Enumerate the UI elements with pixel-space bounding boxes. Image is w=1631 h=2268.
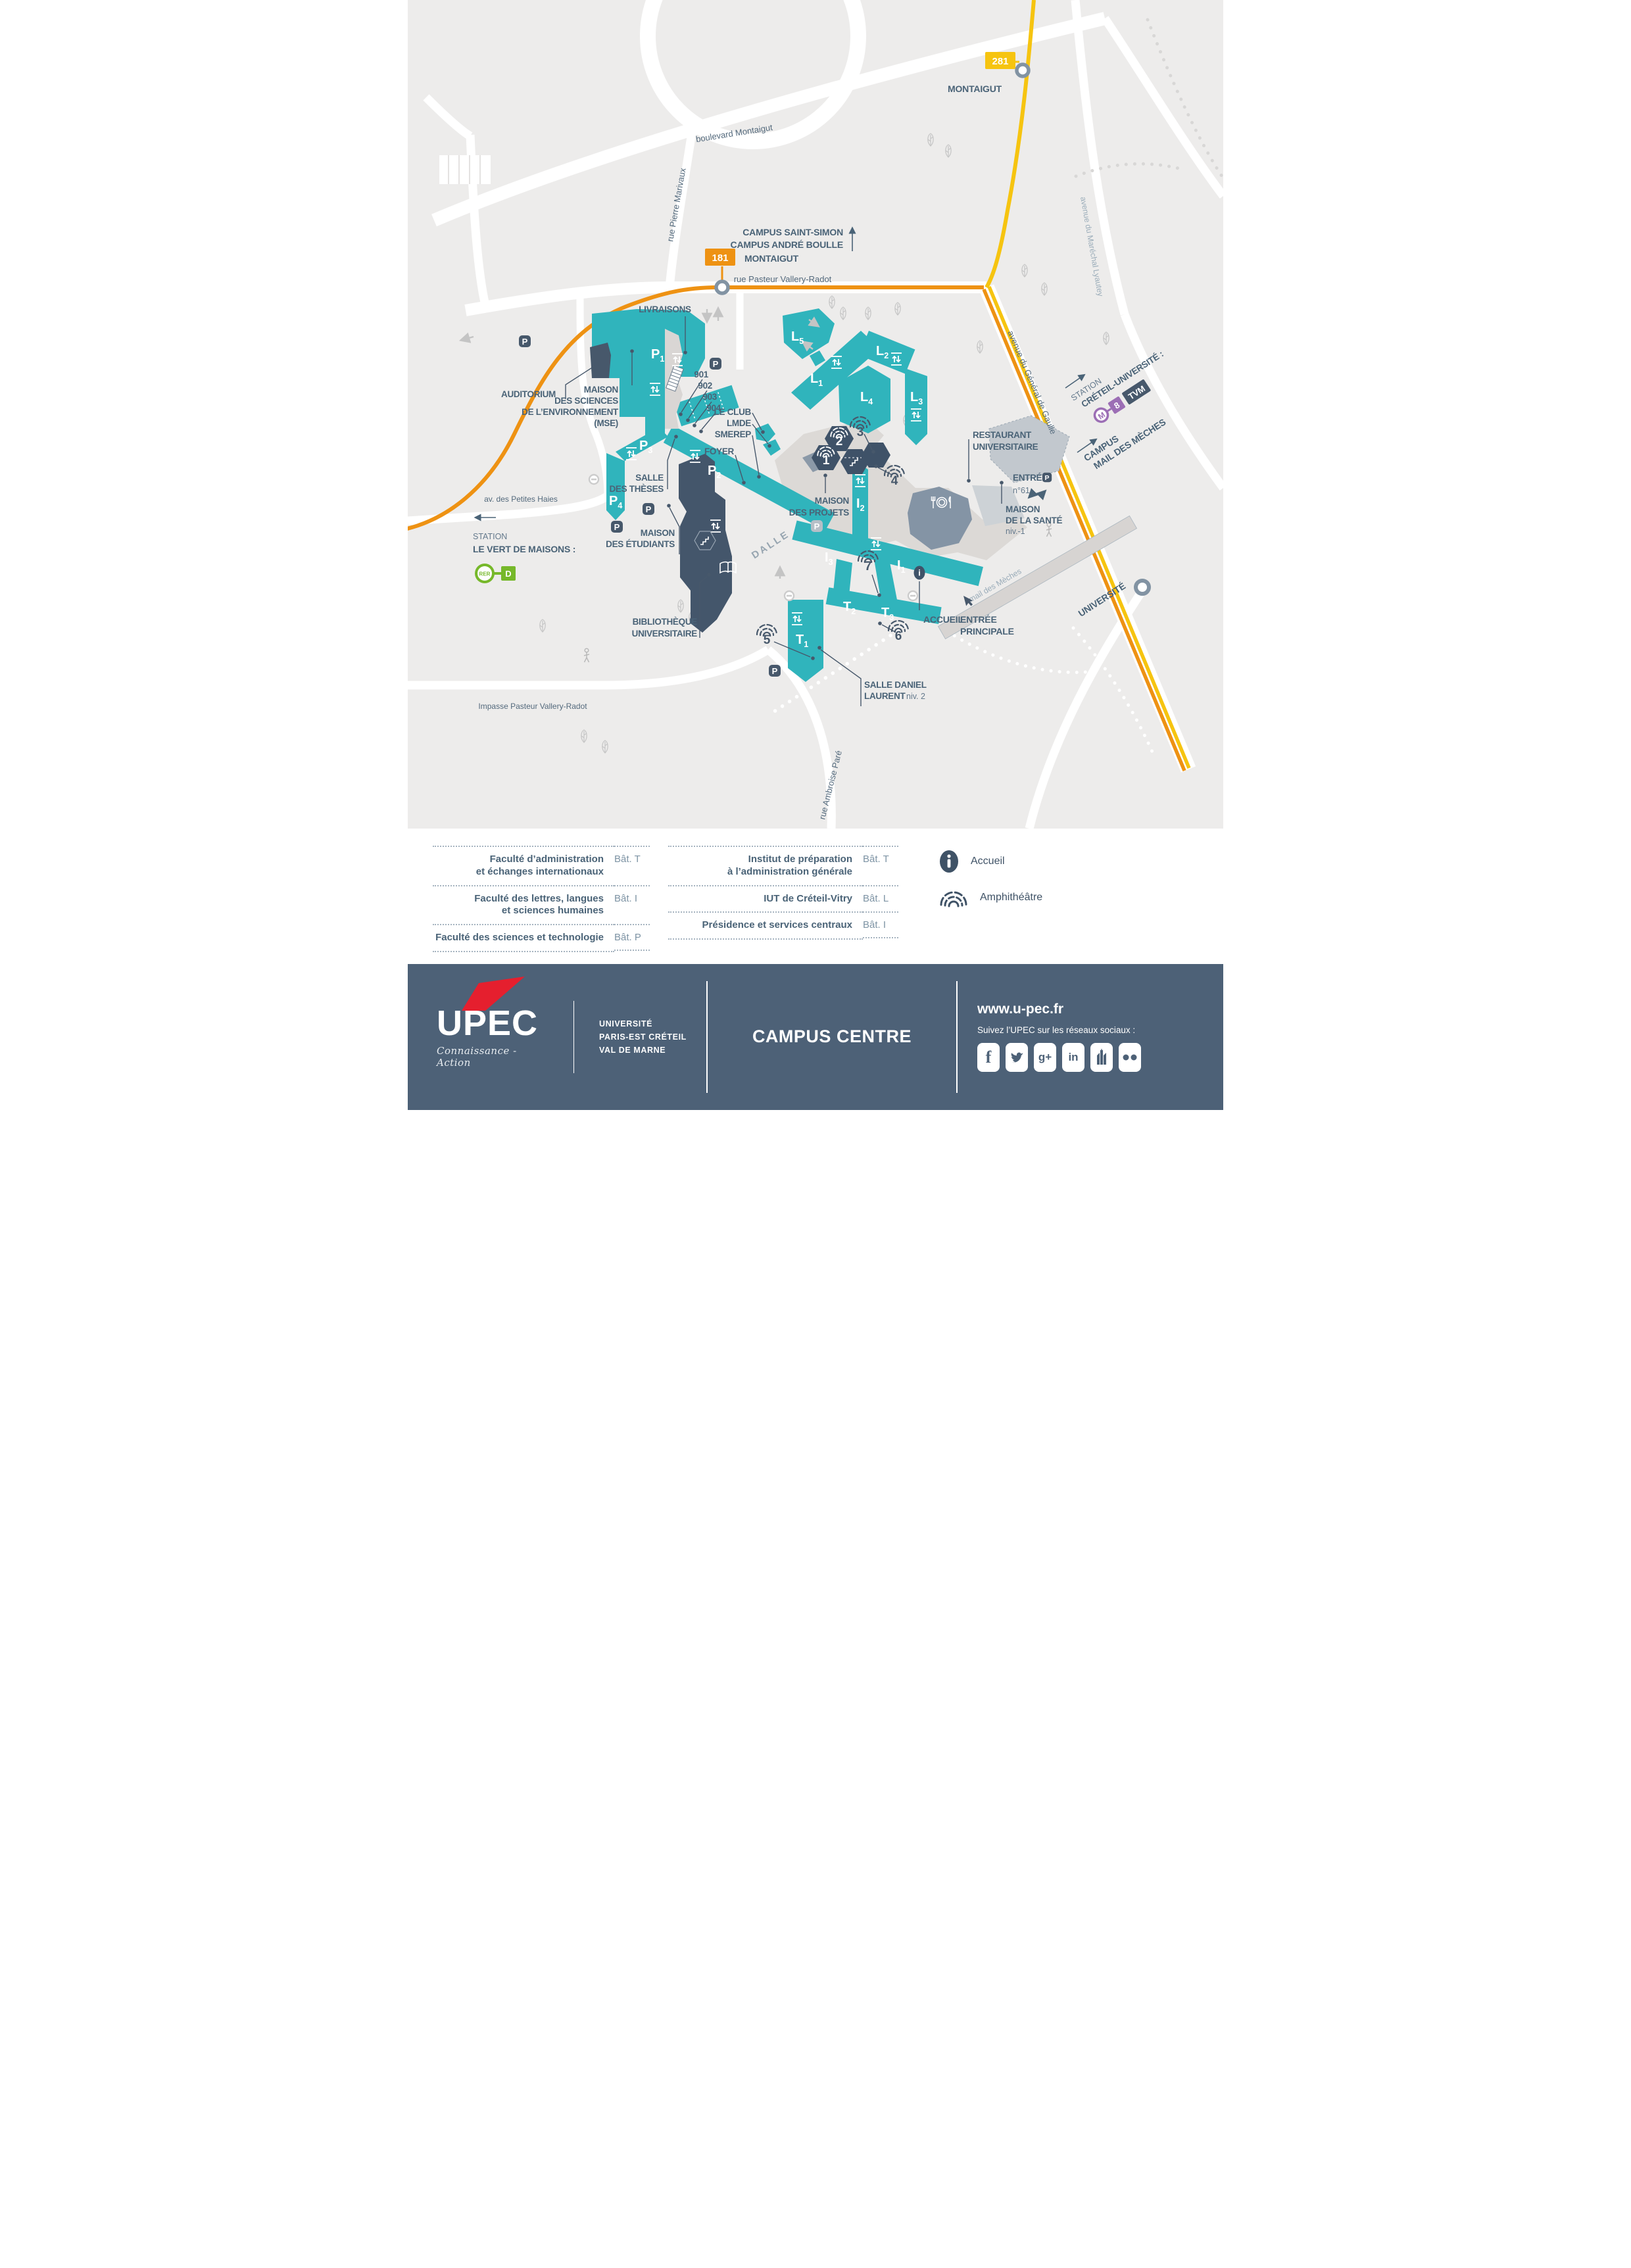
svg-text:181: 181 xyxy=(712,253,728,264)
divider xyxy=(706,981,708,1093)
info-icon xyxy=(939,850,959,873)
svg-text:D: D xyxy=(505,569,511,579)
no-entry-icon xyxy=(785,591,794,600)
parking-lot xyxy=(439,155,491,184)
building-l3 xyxy=(905,368,927,445)
legend-row: Faculté des lettres, langueset sciences … xyxy=(433,885,650,925)
svg-text:903: 903 xyxy=(702,392,717,402)
city-icon[interactable] xyxy=(1090,1043,1113,1072)
svg-text:niv. 2: niv. 2 xyxy=(906,692,925,701)
campus-title: CAMPUS CENTRE xyxy=(727,1026,937,1047)
info-icon: i xyxy=(914,566,925,580)
footer: UPEC Connaissance - Action UNIVERSITÉ PA… xyxy=(408,964,1223,1110)
legend-column-2: Institut de préparationà l’administratio… xyxy=(668,846,898,952)
upec-logo: UPEC Connaissance - Action xyxy=(437,1005,548,1069)
upec-wordmark: UPEC xyxy=(437,1005,548,1041)
amphi-6: 6 xyxy=(895,629,902,643)
campus-map-page: P P xyxy=(408,0,1223,1110)
legend-row: Faculté des sciences et technologie Bât.… xyxy=(433,924,650,952)
svg-text:DES THÈSES: DES THÈSES xyxy=(609,484,664,494)
parking-icon xyxy=(643,503,654,515)
dir-campus-saint-simon: CAMPUS SAINT-SIMON xyxy=(742,227,843,237)
amphi-5: 5 xyxy=(764,633,771,647)
street-rue-pasteur: rue Pasteur Vallery-Radot xyxy=(734,274,832,284)
flickr-icon[interactable] xyxy=(1119,1043,1141,1072)
svg-text:DE LA SANTÉ: DE LA SANTÉ xyxy=(1006,516,1062,525)
bat-label: Bât. I xyxy=(614,885,650,911)
svg-text:LMDE: LMDE xyxy=(727,418,751,428)
website-url[interactable]: www.u-pec.fr xyxy=(977,1001,1194,1017)
campus-directions: CAMPUS SAINT-SIMON CAMPUS ANDRÉ BOULLE xyxy=(731,227,852,251)
svg-text:(MSE): (MSE) xyxy=(594,418,618,428)
svg-text:DES ÉTUDIANTS: DES ÉTUDIANTS xyxy=(606,539,675,549)
stop-montaigut-181: MONTAIGUT xyxy=(744,253,799,264)
svg-text:LAURENT: LAURENT xyxy=(864,691,906,701)
campus-map: P P xyxy=(408,0,1223,829)
svg-text:LE CLUB: LE CLUB xyxy=(714,407,752,417)
legend-column-3: Accueil Amphithéâtre xyxy=(917,846,1204,952)
svg-text:902: 902 xyxy=(698,381,712,391)
svg-text:ENTRÉE: ENTRÉE xyxy=(960,614,997,625)
legend-accueil: Accueil xyxy=(939,850,1204,873)
svg-text:PRINCIPALE: PRINCIPALE xyxy=(960,626,1014,637)
bat-label: Bât. P xyxy=(614,924,650,951)
street-petites-haies: av. des Petites Haies xyxy=(484,495,558,504)
divider xyxy=(956,981,958,1093)
label-n61: n°61 xyxy=(1013,486,1030,495)
label-livraisons: LIVRAISONS xyxy=(639,304,691,314)
university-name: UNIVERSITÉ PARIS-EST CRÉTEIL VAL DE MARN… xyxy=(599,1017,687,1057)
amphitheatre-icon xyxy=(939,888,968,907)
svg-text:UNIVERSITAIRE: UNIVERSITAIRE xyxy=(973,442,1038,452)
building-i2 xyxy=(852,464,868,542)
building-p1 xyxy=(645,318,665,443)
amphi-2: 2 xyxy=(836,435,843,448)
svg-text:BIBLIOTHÈQUE: BIBLIOTHÈQUE xyxy=(633,617,698,627)
svg-text:MAISON: MAISON xyxy=(584,385,618,395)
legend-row: Présidence et services centraux Bât. I xyxy=(668,911,898,940)
no-entry-icon xyxy=(589,475,598,484)
parking-icon xyxy=(519,335,531,347)
svg-text:RESTAURANT: RESTAURANT xyxy=(973,430,1032,440)
svg-text:niv.-1: niv.-1 xyxy=(1006,527,1025,536)
linkedin-icon[interactable]: in xyxy=(1062,1043,1084,1072)
no-entry-icon xyxy=(908,591,917,600)
svg-text:DES PROJETS: DES PROJETS xyxy=(789,508,850,518)
amphi-4: 4 xyxy=(891,474,898,488)
stop-montaigut-281: MONTAIGUT xyxy=(948,84,1002,94)
parking-icon xyxy=(710,358,721,370)
svg-text:SALLE: SALLE xyxy=(635,473,664,483)
svg-text:MAISON: MAISON xyxy=(815,496,849,506)
bat-label: Bât. I xyxy=(863,911,898,938)
divider xyxy=(573,1001,574,1073)
legend-amphitheatre: Amphithéâtre xyxy=(939,888,1204,907)
googleplus-icon[interactable]: g+ xyxy=(1034,1043,1056,1072)
social-follow-text: Suivez l’UPEC sur les réseaux sociaux : xyxy=(977,1025,1194,1035)
facebook-icon[interactable]: f xyxy=(977,1043,1000,1072)
footer-social: www.u-pec.fr Suivez l’UPEC sur les résea… xyxy=(977,1001,1194,1072)
svg-text:RER: RER xyxy=(479,571,491,577)
legend-row: IUT de Créteil-Vitry Bât. L xyxy=(668,885,898,912)
svg-text:DE L’ENVIRONNEMENT: DE L’ENVIRONNEMENT xyxy=(522,407,619,417)
svg-text:UNIVERSITAIRE: UNIVERSITAIRE xyxy=(632,629,698,639)
parking-icon xyxy=(611,521,623,533)
building-auditorium xyxy=(590,343,611,378)
svg-text:DES SCIENCES: DES SCIENCES xyxy=(554,396,618,406)
legend-row: Faculté d’administrationet échanges inte… xyxy=(433,846,650,885)
svg-text:901: 901 xyxy=(694,370,708,379)
amphi-1: 1 xyxy=(823,454,830,468)
station-word: STATION xyxy=(473,532,507,541)
svg-text:SMEREP: SMEREP xyxy=(715,429,752,439)
twitter-icon[interactable] xyxy=(1006,1043,1028,1072)
bat-label: Bât. T xyxy=(614,846,650,871)
svg-text:FOYER: FOYER xyxy=(704,446,735,456)
legend: Faculté d’administrationet échanges inte… xyxy=(408,829,1223,964)
label-auditorium: AUDITORIUM xyxy=(501,389,556,399)
label-accueil: ACCUEIL xyxy=(923,614,963,625)
legend-row: Institut de préparationà l’administratio… xyxy=(668,846,898,885)
upec-tagline: Connaissance - Action xyxy=(437,1045,548,1069)
svg-text:SALLE DANIEL: SALLE DANIEL xyxy=(864,680,927,690)
svg-text:281: 281 xyxy=(992,56,1008,67)
svg-text:MAISON: MAISON xyxy=(1006,504,1040,514)
upec-logo-slash xyxy=(462,977,525,1011)
bat-label: Bât. L xyxy=(863,885,898,911)
svg-text:i: i xyxy=(918,568,921,578)
dir-campus-andre-boulle: CAMPUS ANDRÉ BOULLE xyxy=(731,239,843,250)
amphi-7: 7 xyxy=(865,560,872,573)
parking-icon xyxy=(769,665,781,677)
station-vert-label: LE VERT DE MAISONS : xyxy=(473,544,575,554)
amphi-3: 3 xyxy=(857,425,864,439)
svg-text:MAISON: MAISON xyxy=(641,528,675,538)
parking-icon xyxy=(1042,473,1052,482)
bat-label: Bât. T xyxy=(863,846,898,871)
upec-logo-block: UPEC Connaissance - Action UNIVERSITÉ PA… xyxy=(437,1001,687,1073)
street-impasse-pasteur: Impasse Pasteur Vallery-Radot xyxy=(478,702,587,711)
parking-icon xyxy=(811,520,823,532)
legend-column-1: Faculté d’administrationet échanges inte… xyxy=(433,846,650,952)
